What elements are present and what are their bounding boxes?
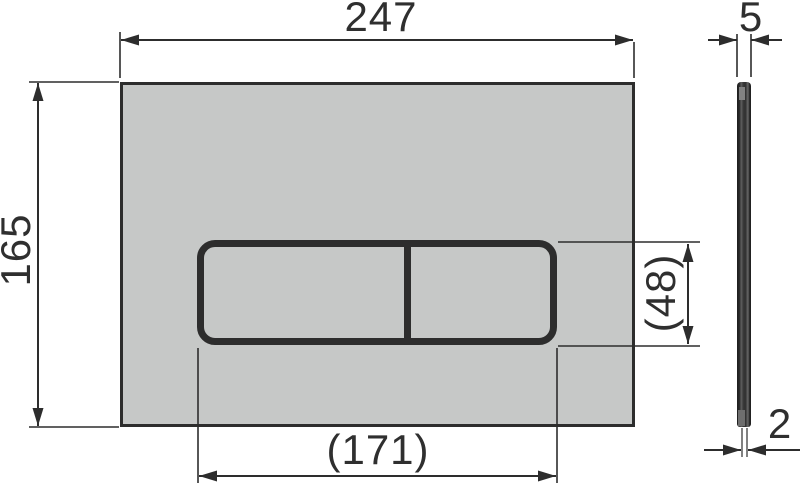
dim-plate-thickness — [708, 34, 782, 77]
dim-label-plate-thickness: 5 — [721, 0, 781, 38]
arrowhead-icon — [199, 471, 217, 482]
dim-label-plate-height: 165 — [0, 190, 37, 310]
arrowhead-icon — [748, 445, 766, 456]
arrowhead-icon — [615, 35, 633, 46]
dim-label-button-area-width: (171) — [288, 429, 468, 471]
technical-drawing-canvas: 247 165 5 2 (48) (171) — [0, 0, 800, 485]
arrowhead-icon — [33, 408, 44, 426]
arrowhead-icon — [723, 445, 741, 456]
dim-plate-height — [29, 82, 119, 427]
arrowhead-icon — [33, 83, 44, 101]
dim-label-edge-thickness: 2 — [750, 403, 800, 445]
arrowhead-icon — [121, 35, 139, 46]
dim-label-button-area-height: (48) — [640, 228, 682, 358]
arrowhead-icon — [683, 244, 694, 262]
dim-label-plate-width: 247 — [321, 0, 441, 38]
arrowhead-icon — [538, 471, 556, 482]
arrowhead-icon — [683, 326, 694, 344]
